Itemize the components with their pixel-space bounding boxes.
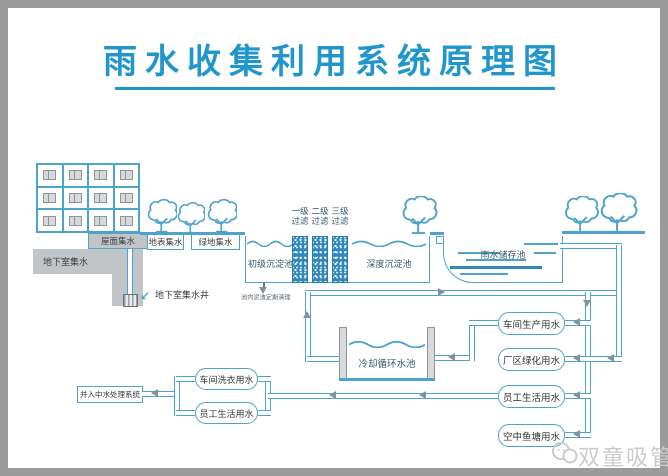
recycle-box-employee-living: 员工生活用水 [195,402,258,424]
flow-arrow-icon [583,300,591,311]
pipe-segment [469,322,475,361]
building-cell [114,164,140,187]
building-cell [37,164,63,187]
primary-tank-label: 初级沉淀池 [247,257,294,270]
window-icon [120,193,133,203]
window-icon [43,170,56,180]
surface-collect-box: 地表集水 [147,233,184,250]
flow-arrow-icon [569,354,580,362]
cooling-tank-label: 冷却循环水池 [352,356,422,370]
title-underline [115,87,555,90]
window-icon [94,193,107,203]
filter2-label: 二级 过滤 [309,207,331,227]
building-cell [37,187,63,210]
window-icon [69,216,82,226]
window-icon [43,193,56,203]
diagram-frame: 雨水收集利用系统原理图 地下室集水 屋面集水 地表集水 绿地集水 ↙ 地下室集水… [0,0,668,476]
building-cell [63,187,89,210]
flow-arrow-icon [147,389,158,397]
building-cell [63,209,89,232]
water-line [534,252,556,254]
water-wave [349,339,425,348]
cooling-tank-bottom [339,378,435,381]
tree-icon [177,202,205,234]
pipe-segment [616,245,622,362]
filter-column-3 [332,236,348,283]
filter-column-2 [312,236,328,283]
usage-box-employee-living: 员工生活用水 [498,385,565,408]
storage-pool-label: 雨水储存池 [470,248,536,261]
roof-collect-box: 屋面集水 [88,233,148,249]
flow-arrow-icon [603,354,614,362]
window-icon [94,170,107,180]
building-cell [114,209,140,232]
page-title: 雨水收集利用系统原理图 [0,34,668,83]
usage-box-workshop-production: 车间生产用水 [498,312,565,335]
building [36,163,140,233]
tree-icon [147,198,177,234]
tree-icon [563,196,599,233]
filter-column-1 [292,236,308,283]
pipe-segment [560,243,622,249]
flow-arrow-icon [438,288,449,296]
building-cell [88,187,114,210]
usage-box-factory-greening: 厂区绿化用水 [498,348,565,371]
pipe-segment [585,292,591,438]
water-wave [247,239,293,247]
pipe-segment [268,393,498,399]
pipe-segment [258,410,271,416]
window-icon [120,170,133,180]
window-icon [43,216,56,226]
cooling-tank-wall [339,327,347,381]
pipe-segment [305,292,311,362]
flow-arrow-icon [415,391,426,399]
flow-arrow-icon [569,318,580,326]
recycle-box-workshop-laundry: 车间洗衣用水 [195,368,258,390]
collection-well [123,294,138,307]
flow-arrow-icon [303,307,311,318]
pipe-segment [305,290,622,296]
flow-arrow-icon [325,391,336,399]
water-line [460,273,508,275]
basement-collect-label: 地下室集水 [43,255,88,268]
watermark-text: 双童吸管 [578,440,668,472]
filter3-label: 三级 过滤 [329,207,351,227]
window-icon [120,216,133,226]
well-label: 地下室集水井 [155,288,209,301]
window-icon [69,170,82,180]
well-pointer-arrow-icon: ↙ [140,289,150,303]
water-line [450,266,542,269]
pipe-segment [258,376,271,382]
pipe-segment [176,410,195,416]
flow-arrow-icon [569,430,580,438]
building-cell [63,164,89,187]
sludge-note: 池内泥渣定期清理 [241,292,291,301]
flow-arrow-icon [569,391,580,399]
deep-tank-label: 深度沉淀池 [352,257,426,270]
water-line [524,243,558,245]
window-icon [69,193,82,203]
window-icon [94,216,107,226]
water-wave [352,239,426,247]
building-cell [37,209,63,232]
flow-arrow-icon [444,353,455,361]
cooling-tank-wall [427,327,435,381]
pipe-segment [307,356,341,362]
building-cell [114,187,140,210]
tree-icon [400,196,438,234]
pipe-segment [176,376,195,382]
pipe-segment [127,249,133,295]
building-cell [88,164,114,187]
tree-icon [207,198,237,234]
green-collect-box: 绿地集水 [191,233,240,250]
filter1-label: 一级 过滤 [289,207,311,227]
wechat-bubbles-icon [551,441,578,465]
pipe-segment [469,320,498,326]
reclaimed-water-system-box: 并入中水处理系统 [77,386,143,403]
building-cell [88,209,114,232]
tree-icon [598,193,638,233]
